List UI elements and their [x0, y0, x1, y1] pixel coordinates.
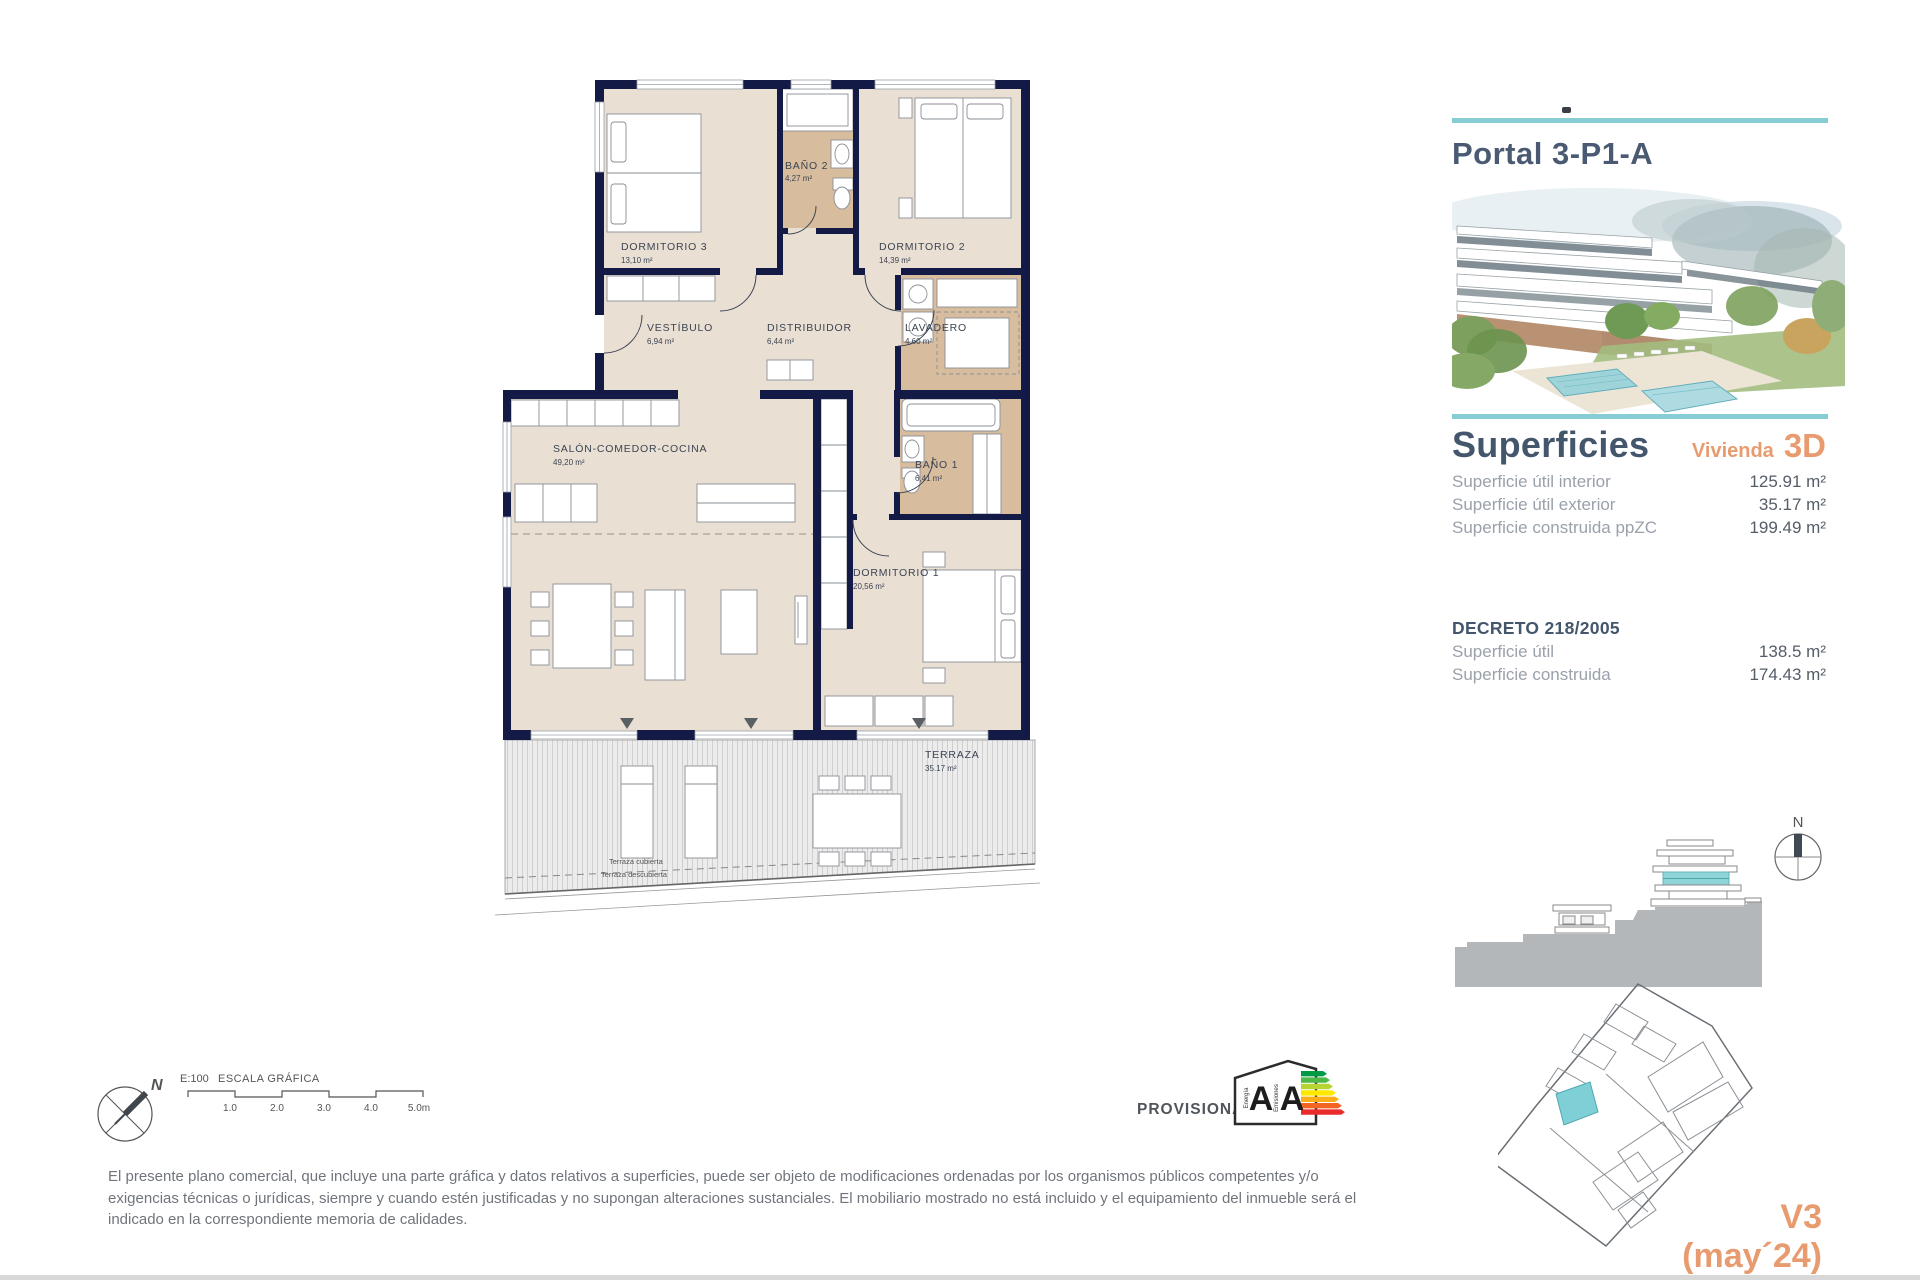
- vivienda-label: Vivienda: [1692, 440, 1774, 463]
- terrain-profile: [1455, 901, 1762, 987]
- decreto-value: 138.5 m²: [1759, 642, 1826, 662]
- north-needle-icon: [1794, 834, 1802, 857]
- scale-tick: 5.0m: [408, 1103, 430, 1114]
- decreto-row: Superficie útil 138.5 m²: [1452, 640, 1826, 663]
- north-needle-icon: [125, 1093, 146, 1114]
- disclaimer-line: indicado en la correspondiente memoria d…: [108, 1209, 1418, 1231]
- energy-rating-label: Energía Emisiones A A: [1230, 1056, 1355, 1130]
- disclaimer-line: El presente plano comercial, que incluye…: [108, 1166, 1418, 1188]
- room-label: BAÑO 1: [915, 458, 958, 471]
- scale-ratio: E:100: [180, 1073, 209, 1085]
- highlighted-unit: [1556, 1082, 1598, 1125]
- superficies-rule: [1452, 414, 1828, 419]
- room-label: BAÑO 2: [785, 159, 828, 172]
- page-title: Portal 3-P1-A: [1452, 136, 1832, 172]
- superficie-row: Superficie útil interior 125.91 m²: [1452, 470, 1826, 493]
- room-area: 6,41 m²: [915, 474, 942, 483]
- energy-scale-bars: [1301, 1071, 1345, 1115]
- decreto-label: Superficie construida: [1452, 665, 1611, 685]
- version-date: (may´24): [1500, 1237, 1822, 1276]
- logo-mark: [1562, 107, 1571, 113]
- section-diagram: N: [1455, 795, 1885, 990]
- room-area: 20,56 m²: [853, 582, 885, 591]
- terrace-covered-label: Terraza cubierta: [609, 857, 664, 866]
- vivienda-code: 3D: [1784, 427, 1826, 465]
- room-label: TERRAZA: [925, 749, 980, 761]
- superficie-value: 35.17 m²: [1759, 495, 1826, 515]
- plan-sheet: DORMITORIO 3 13,10 m² BAÑO 2 4,27 m² DOR…: [0, 0, 1920, 1280]
- scale-tick: 1.0: [223, 1103, 237, 1114]
- superficie-label: Superficie útil exterior: [1452, 495, 1615, 515]
- decreto-row: Superficie construida 174.43 m²: [1452, 663, 1826, 686]
- room-area: 14,39 m²: [879, 256, 911, 265]
- scale-ruler: [188, 1091, 423, 1097]
- floor-plan: DORMITORIO 3 13,10 m² BAÑO 2 4,27 m² DOR…: [495, 72, 1040, 917]
- disclaimer-line: exigencias técnicas o jurídicas, siempre…: [108, 1188, 1418, 1210]
- room-label: DORMITORIO 1: [853, 567, 939, 579]
- section-north-label: N: [1793, 814, 1804, 831]
- superficie-value: 199.49 m²: [1749, 518, 1826, 538]
- compass-north-label: N: [151, 1077, 163, 1094]
- header-rule: [1452, 118, 1828, 123]
- scale-title: ESCALA GRÁFICA: [218, 1072, 320, 1085]
- room-label: SALÓN-COMEDOR-COCINA: [553, 442, 707, 455]
- superficie-label: Superficie construida ppZC: [1452, 518, 1657, 538]
- superficie-row: Superficie útil exterior 35.17 m²: [1452, 493, 1826, 516]
- scale-tick: 3.0: [317, 1103, 331, 1114]
- emissions-letter: A: [1280, 1080, 1305, 1118]
- room-label: DORMITORIO 2: [879, 241, 965, 253]
- terrace-uncovered-label: Terraza descubierta: [601, 870, 668, 879]
- decreto-heading: DECRETO 218/2005: [1452, 618, 1620, 639]
- sheet-bottom-edge: [0, 1275, 1920, 1280]
- room-area: 13,10 m²: [621, 256, 653, 265]
- superficies-heading: Superficies: [1452, 424, 1649, 466]
- scale-tick: 2.0: [270, 1103, 284, 1114]
- energy-letter: A: [1249, 1080, 1274, 1118]
- room-label: DORMITORIO 3: [621, 241, 707, 253]
- room-label: DISTRIBUIDOR: [767, 322, 852, 334]
- room-label: LAVADERO: [905, 322, 967, 334]
- building-rendering: [1452, 186, 1845, 414]
- room-area: 35.17 m²: [925, 764, 957, 773]
- disclaimer-text: El presente plano comercial, que incluye…: [108, 1166, 1418, 1231]
- terrace-area: [495, 740, 1040, 915]
- room-area: 6,94 m²: [647, 337, 674, 346]
- scale-tick: 4.0: [364, 1103, 378, 1114]
- room-area: 4,60 m²: [905, 337, 932, 346]
- version-block: V3 (may´24): [1500, 1198, 1822, 1276]
- superficie-label: Superficie útil interior: [1452, 472, 1611, 492]
- decreto-value: 174.43 m²: [1749, 665, 1826, 685]
- room-area: 6,44 m²: [767, 337, 794, 346]
- room-label: VESTÍBULO: [647, 321, 713, 334]
- room-area: 4,27 m²: [785, 174, 812, 183]
- superficies-header: Superficies Vivienda 3D: [1452, 424, 1826, 466]
- section-compass: N: [1775, 814, 1821, 880]
- version-code: V3: [1500, 1198, 1822, 1237]
- room-area: 49,20 m²: [553, 458, 585, 467]
- superficie-row: Superficie construida ppZC 199.49 m²: [1452, 516, 1826, 539]
- superficie-value: 125.91 m²: [1749, 472, 1826, 492]
- scale-bar: E:100 ESCALA GRÁFICA 1.0 2.0 3.0 4.0 5.0…: [170, 1070, 440, 1118]
- decreto-label: Superficie útil: [1452, 642, 1554, 662]
